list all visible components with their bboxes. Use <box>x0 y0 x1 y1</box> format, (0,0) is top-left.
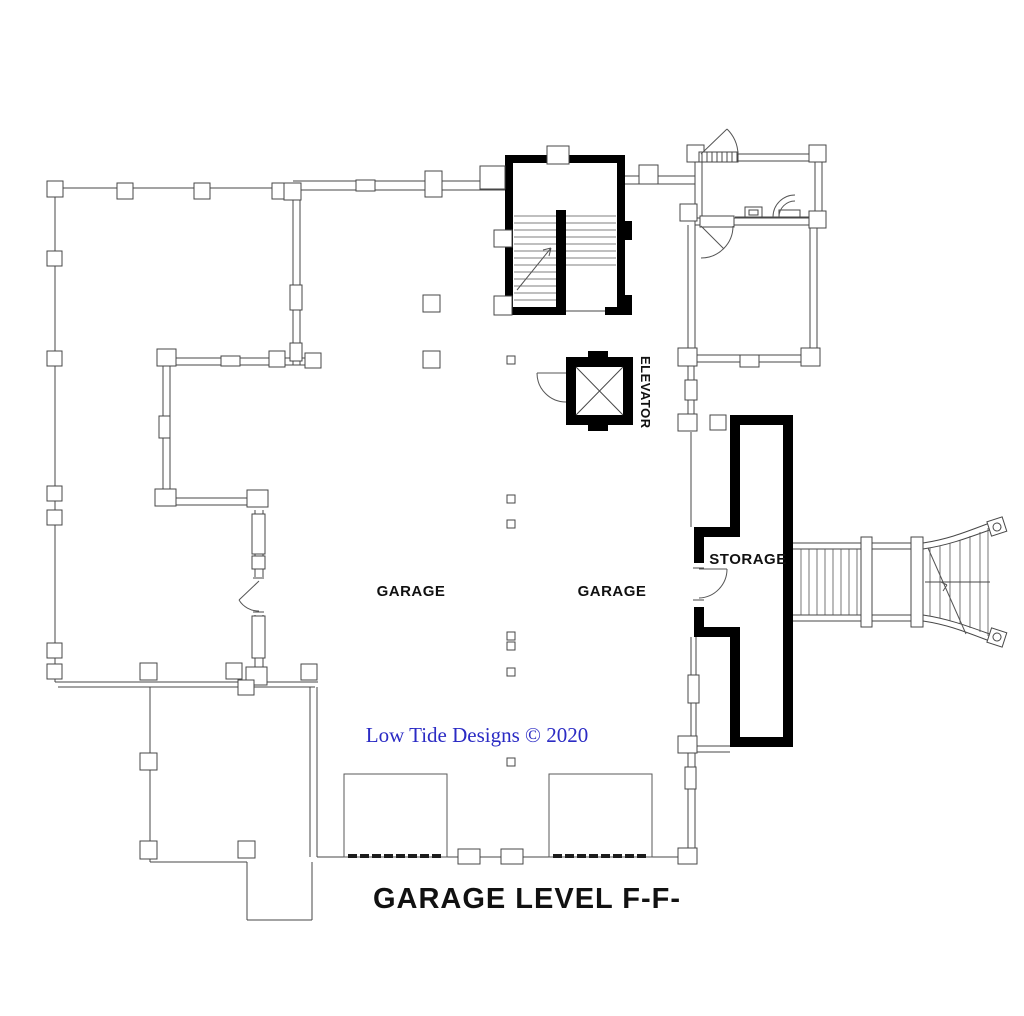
stair-divider-wall <box>556 210 566 315</box>
room-labels: GARAGE GARAGE <box>377 583 647 600</box>
upper-right-room <box>699 129 800 258</box>
floor-plan-drawing: ELEVATOR STORAGE GARAGE G <box>0 0 1024 1016</box>
newel-top <box>987 517 1007 536</box>
stairwell <box>480 146 632 316</box>
mid-left-door <box>239 577 265 615</box>
storage-room: STORAGE <box>692 415 793 747</box>
bay-divider-markers <box>507 356 515 766</box>
garage-door-aprons <box>344 774 652 857</box>
newel-bottom <box>987 628 1007 647</box>
elevator-door <box>537 373 566 402</box>
door-bottom-left <box>701 226 733 258</box>
designer-credit: Low Tide Designs © 2020 <box>366 723 588 747</box>
garage-right-label: GARAGE <box>578 583 647 600</box>
door-top-left <box>701 129 738 154</box>
columns <box>47 145 826 864</box>
plan-title: GARAGE LEVEL F-F- <box>373 883 681 915</box>
storage-label: STORAGE <box>709 551 786 568</box>
elevator-label: ELEVATOR <box>638 356 653 429</box>
curved-grand-stair <box>793 517 1007 647</box>
garage-left-label: GARAGE <box>377 583 446 600</box>
counter-fixtures <box>745 195 800 217</box>
floor-plan-sheet: ELEVATOR STORAGE GARAGE G <box>0 0 1024 1016</box>
elevator-shaft: ELEVATOR <box>537 351 653 431</box>
